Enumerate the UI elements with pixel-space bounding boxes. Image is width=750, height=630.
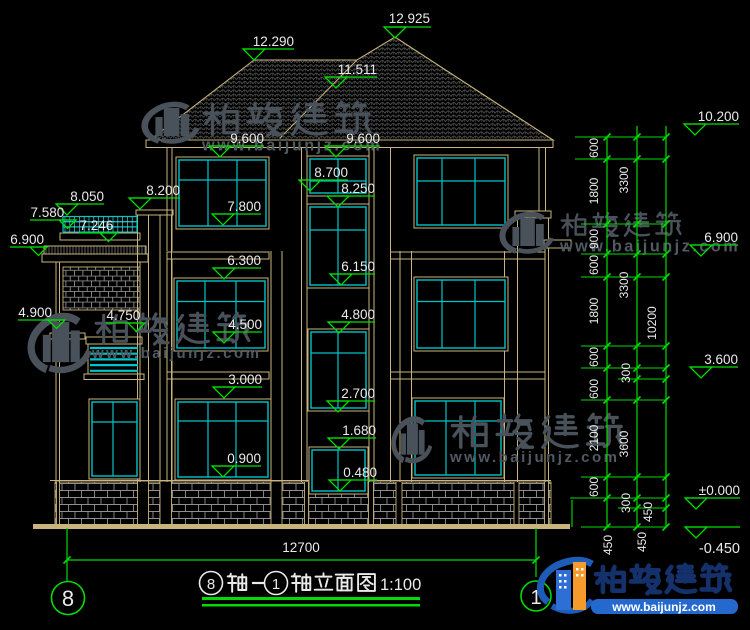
svg-text:300: 300 <box>619 493 633 513</box>
svg-text:7.800: 7.800 <box>227 199 261 214</box>
svg-text:8: 8 <box>62 586 74 611</box>
svg-text:2100: 2100 <box>587 424 601 451</box>
svg-text:6.300: 6.300 <box>227 253 261 268</box>
svg-text:12700: 12700 <box>282 540 320 555</box>
svg-text:3.600: 3.600 <box>704 352 738 367</box>
svg-text:-0.450: -0.450 <box>699 541 740 557</box>
svg-text:450: 450 <box>641 502 655 522</box>
svg-text:4.750: 4.750 <box>107 308 141 323</box>
svg-text:11.511: 11.511 <box>338 62 377 77</box>
svg-text:6.150: 6.150 <box>341 259 375 274</box>
svg-text:600: 600 <box>587 477 601 497</box>
svg-text:0.900: 0.900 <box>227 451 261 466</box>
svg-text:1800: 1800 <box>587 297 601 324</box>
svg-text:www.baijunjz.com: www.baijunjz.com <box>611 600 716 614</box>
svg-text:9.600: 9.600 <box>230 131 264 146</box>
svg-text:3.000: 3.000 <box>228 372 262 387</box>
svg-text:300: 300 <box>619 363 633 383</box>
svg-text:2.700: 2.700 <box>341 386 375 401</box>
svg-text:1800: 1800 <box>587 177 601 204</box>
svg-text:450: 450 <box>601 535 615 555</box>
svg-text:±0.000: ±0.000 <box>699 483 740 498</box>
svg-text:600: 600 <box>587 379 601 399</box>
svg-text:10200: 10200 <box>645 306 659 340</box>
svg-text:8: 8 <box>207 576 215 593</box>
svg-text:900: 900 <box>587 229 601 249</box>
svg-text:450: 450 <box>635 532 649 552</box>
svg-text:8.700: 8.700 <box>314 165 348 180</box>
svg-text:7.580: 7.580 <box>31 205 65 220</box>
svg-text:12.925: 12.925 <box>389 11 430 26</box>
svg-text:4.500: 4.500 <box>228 317 262 332</box>
svg-text:1:100: 1:100 <box>380 576 421 594</box>
svg-text:www.baijunjz.com: www.baijunjz.com <box>91 345 261 362</box>
svg-text:12.290: 12.290 <box>253 34 294 49</box>
svg-text:600: 600 <box>587 138 601 158</box>
svg-text:8.050: 8.050 <box>70 189 104 204</box>
svg-text:8.250: 8.250 <box>341 181 375 196</box>
svg-text:3300: 3300 <box>617 166 631 193</box>
svg-text:600: 600 <box>587 347 601 367</box>
svg-text:0.480: 0.480 <box>343 465 377 480</box>
svg-text:7.246: 7.246 <box>80 218 114 233</box>
svg-text:4.900: 4.900 <box>18 305 52 320</box>
svg-text:3300: 3300 <box>617 271 631 298</box>
svg-text:600: 600 <box>587 255 601 275</box>
svg-text:1.680: 1.680 <box>342 423 376 438</box>
svg-text:6.900: 6.900 <box>10 232 44 247</box>
svg-text:3600: 3600 <box>617 430 631 457</box>
svg-text:8.200: 8.200 <box>146 183 180 198</box>
svg-text:6.900: 6.900 <box>704 230 738 245</box>
svg-text:10.200: 10.200 <box>698 109 739 124</box>
svg-text:9.600: 9.600 <box>346 131 380 146</box>
svg-text:1: 1 <box>272 576 280 593</box>
svg-text:4.800: 4.800 <box>341 307 375 322</box>
